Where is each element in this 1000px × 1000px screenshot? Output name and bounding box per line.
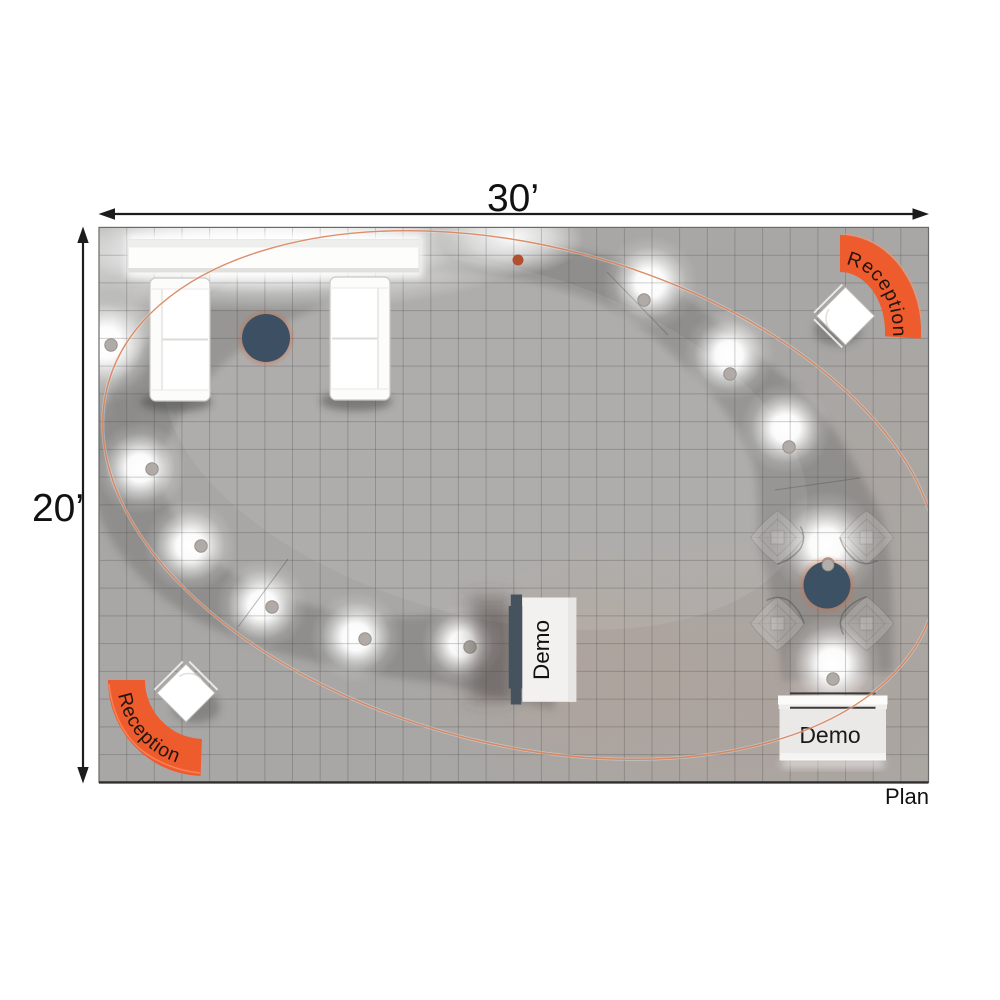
svg-text:Demo: Demo (799, 722, 860, 748)
svg-text:Plan: Plan (885, 784, 929, 809)
svg-text:Demo: Demo (529, 620, 554, 680)
svg-text:20’: 20’ (32, 487, 84, 530)
svg-text:30’: 30’ (487, 177, 539, 220)
